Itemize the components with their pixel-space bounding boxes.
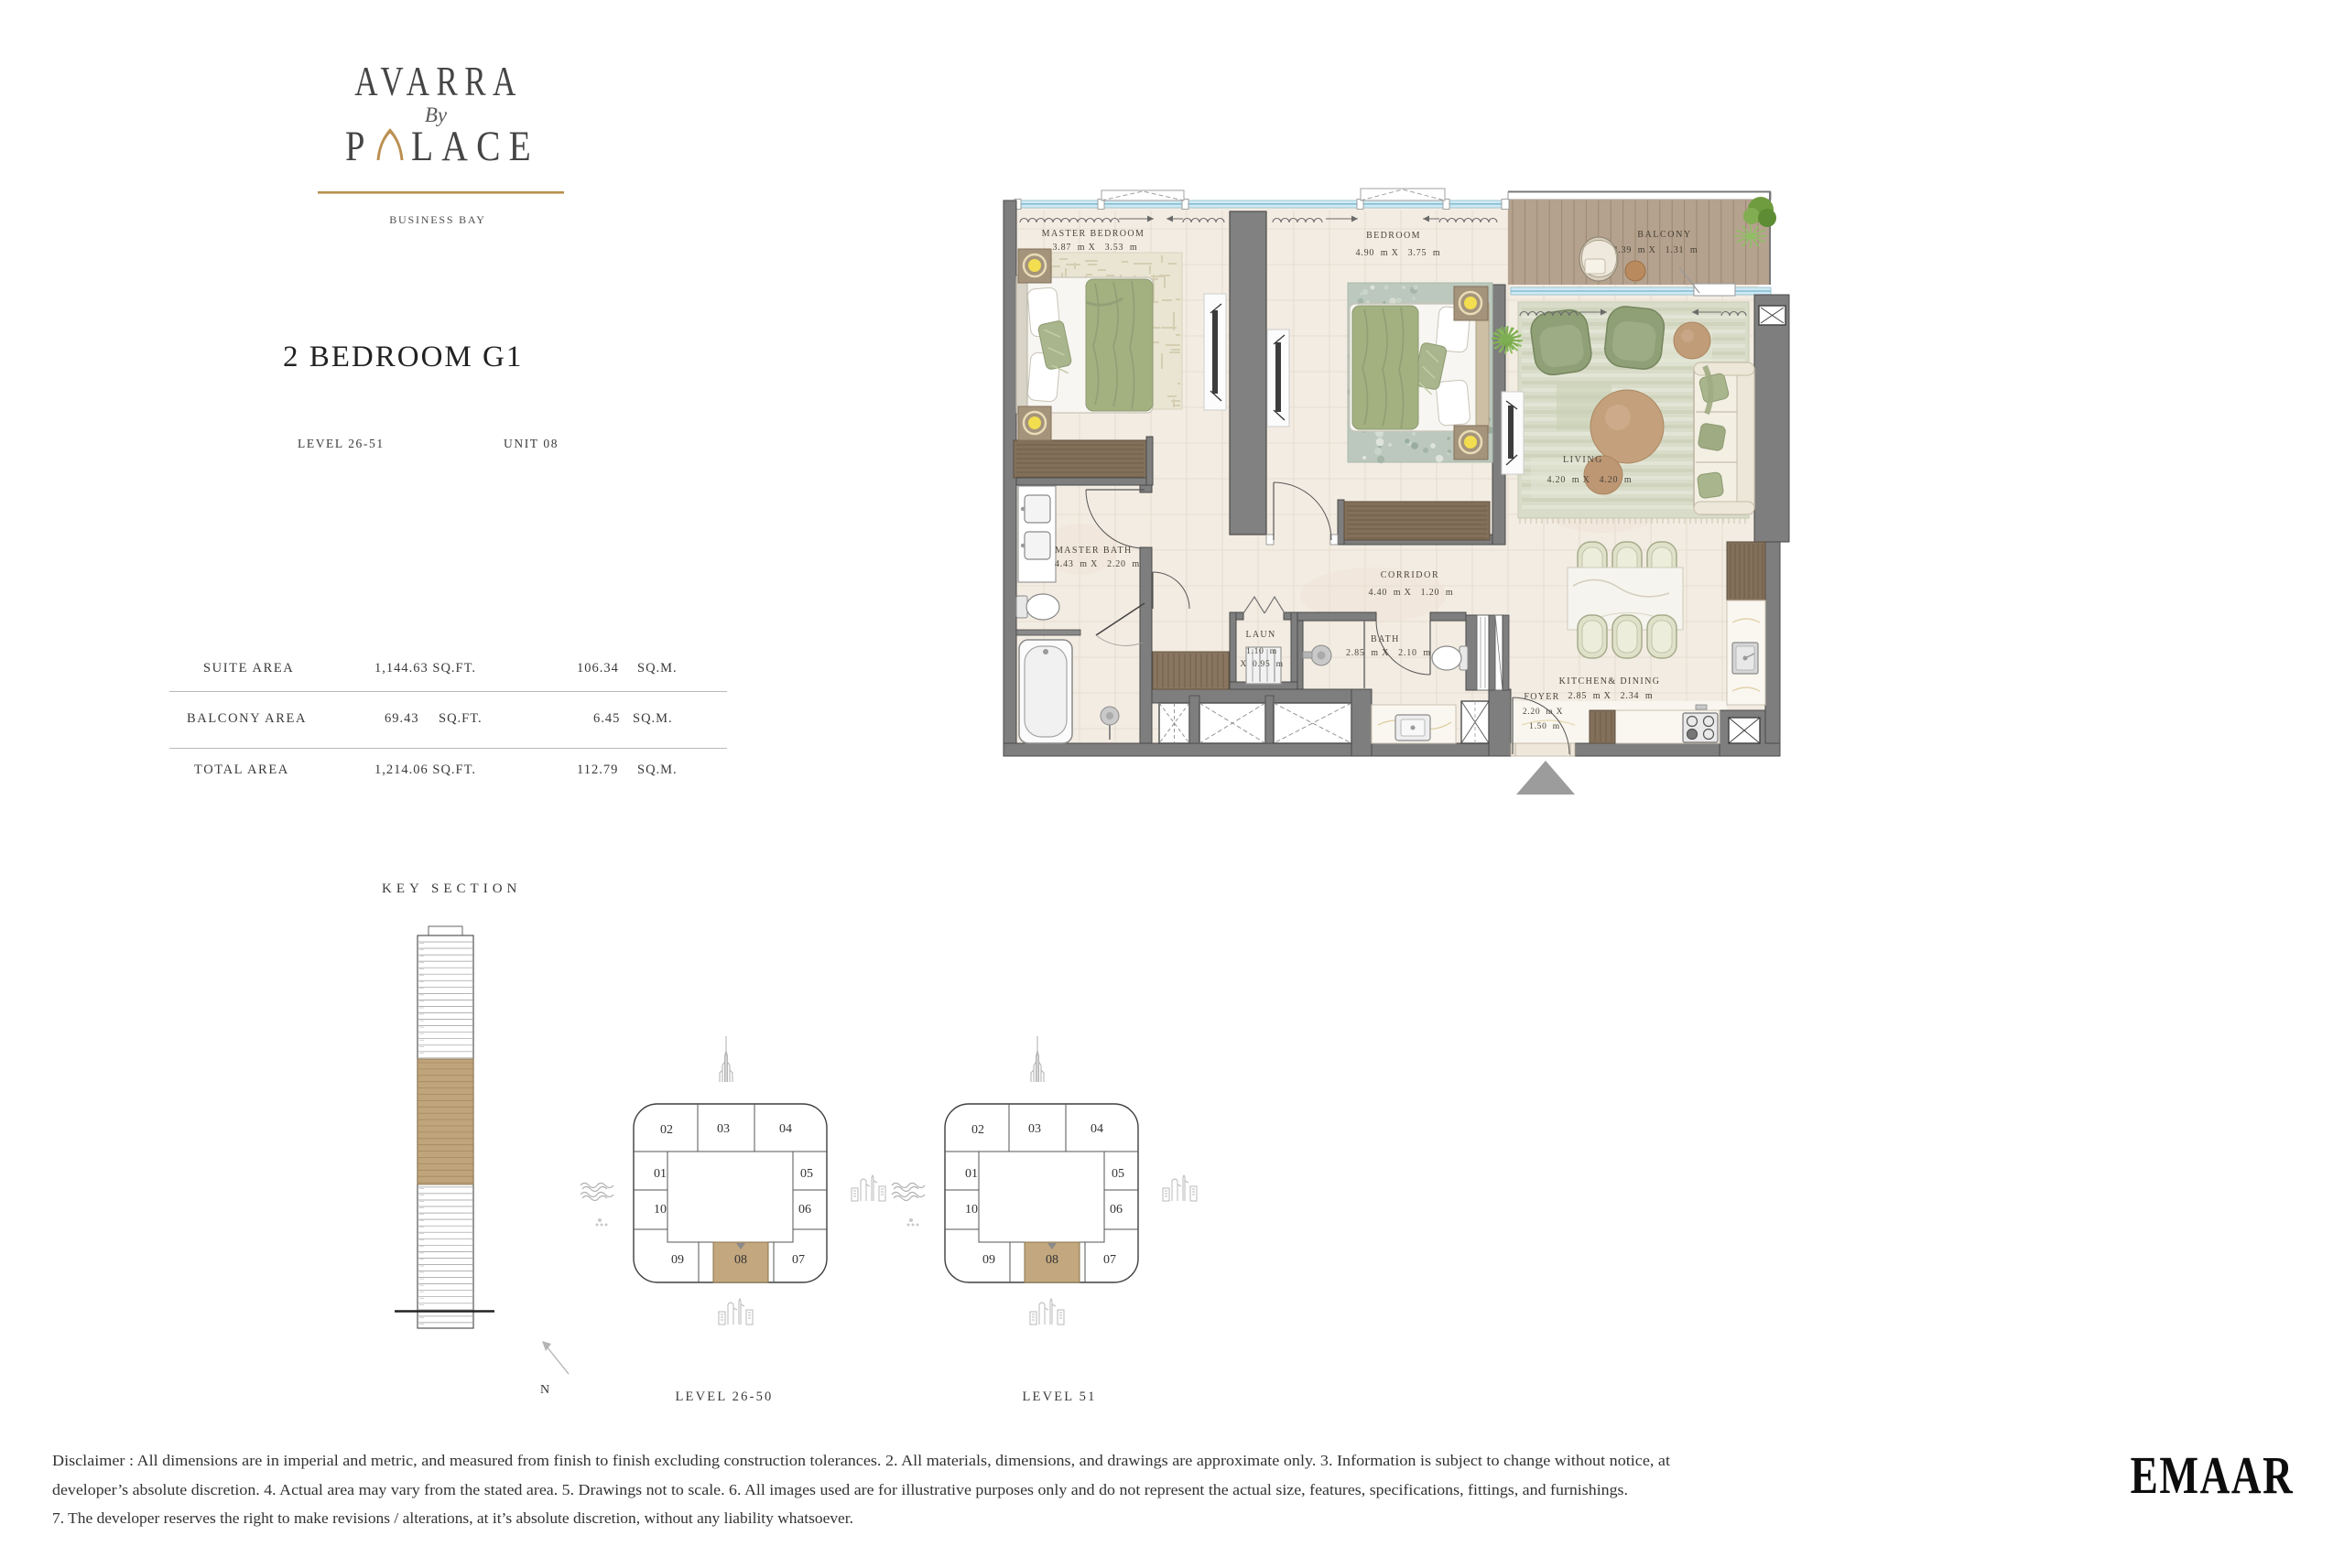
- svg-text:KEY SECTION: KEY SECTION: [382, 881, 521, 896]
- svg-text:CORRIDOR: CORRIDOR: [1381, 570, 1439, 580]
- svg-text:4.43 m X 2.20 m: 4.43 m X 2.20 m: [1055, 559, 1140, 569]
- svg-text:3.87 m X 3.53 m: 3.87 m X 3.53 m: [1053, 243, 1138, 253]
- svg-text:08: 08: [1046, 1253, 1058, 1267]
- svg-text:LIVING: LIVING: [1563, 455, 1603, 465]
- svg-text:04: 04: [779, 1122, 792, 1136]
- svg-text:10: 10: [965, 1203, 978, 1217]
- svg-text:1,214.06 SQ.FT.: 1,214.06 SQ.FT.: [374, 762, 476, 777]
- svg-text:SUITE AREA: SUITE AREA: [203, 661, 294, 676]
- svg-text:09: 09: [982, 1253, 995, 1267]
- svg-text:LACE: LACE: [411, 123, 539, 170]
- svg-text:106.34: 106.34: [577, 661, 619, 676]
- svg-text:UNIT 08: UNIT 08: [504, 437, 559, 450]
- svg-text:LEVEL 26-50: LEVEL 26-50: [675, 1390, 773, 1404]
- svg-text:06: 06: [1110, 1203, 1123, 1217]
- svg-text:developer’s absolute discretio: developer’s absolute discretion. 4. Actu…: [52, 1481, 1628, 1498]
- svg-text:MASTER BATH: MASTER BATH: [1055, 546, 1133, 556]
- svg-text:08: 08: [734, 1253, 747, 1267]
- svg-text:LEVEL 26-51: LEVEL 26-51: [298, 437, 385, 450]
- svg-text:1.50 m: 1.50 m: [1529, 722, 1560, 731]
- svg-text:MASTER BEDROOM: MASTER BEDROOM: [1042, 229, 1145, 239]
- svg-text:SQ.M.: SQ.M.: [637, 661, 678, 676]
- svg-text:09: 09: [671, 1253, 684, 1267]
- svg-text:AVARRA: AVARRA: [354, 59, 523, 104]
- svg-text:1,144.63 SQ.FT.: 1,144.63 SQ.FT.: [374, 661, 476, 676]
- svg-text:TOTAL AREA: TOTAL AREA: [194, 762, 289, 777]
- svg-text:1.10 m: 1.10 m: [1246, 647, 1277, 656]
- svg-text:4.20 m X 4.20 m: 4.20 m X 4.20 m: [1547, 475, 1633, 485]
- svg-text:02: 02: [660, 1123, 673, 1137]
- svg-text:EMAAR: EMAAR: [2131, 1447, 2295, 1506]
- svg-text:4.40 m X 1.20 m: 4.40 m X 1.20 m: [1369, 588, 1454, 598]
- svg-text:07: 07: [1103, 1253, 1116, 1267]
- svg-text:BEDROOM: BEDROOM: [1366, 231, 1421, 241]
- svg-text:KITCHEN& DINING: KITCHEN& DINING: [1559, 676, 1661, 687]
- svg-text:03: 03: [717, 1122, 730, 1136]
- svg-text:LAUN: LAUN: [1246, 630, 1276, 640]
- svg-text:N: N: [540, 1383, 549, 1397]
- svg-text:01: 01: [965, 1167, 978, 1181]
- svg-text:SQ.M.: SQ.M.: [633, 711, 673, 726]
- svg-text:BALCONY AREA: BALCONY AREA: [187, 711, 307, 726]
- svg-text:SQ.M.: SQ.M.: [637, 762, 678, 777]
- svg-text:FOYER: FOYER: [1524, 692, 1559, 702]
- svg-text:112.79: 112.79: [577, 762, 618, 777]
- svg-text:7. The developer reserves the: 7. The developer reserves the right to m…: [52, 1509, 853, 1527]
- svg-text:69.43: 69.43: [385, 711, 419, 726]
- svg-text:01: 01: [654, 1167, 667, 1181]
- svg-text:BALCONY: BALCONY: [1637, 230, 1692, 240]
- svg-text:BUSINESS BAY: BUSINESS BAY: [389, 213, 486, 226]
- svg-text:6.45: 6.45: [593, 711, 620, 726]
- svg-text:03: 03: [1028, 1122, 1041, 1136]
- svg-text:P: P: [345, 124, 364, 170]
- svg-text:Disclaimer : All dimensions ar: Disclaimer : All dimensions are in imper…: [52, 1452, 1670, 1469]
- svg-text:BATH: BATH: [1371, 634, 1400, 644]
- svg-text:SQ.FT.: SQ.FT.: [439, 711, 483, 726]
- svg-text:4.90 m X 3.75 m: 4.90 m X 3.75 m: [1356, 248, 1441, 258]
- svg-text:2.20 m X: 2.20 m X: [1523, 708, 1563, 717]
- svg-text:05: 05: [1112, 1167, 1124, 1181]
- svg-text:07: 07: [792, 1253, 805, 1267]
- svg-text:06: 06: [798, 1203, 811, 1217]
- svg-text:2 BEDROOM G1: 2 BEDROOM G1: [283, 341, 523, 373]
- svg-text:02: 02: [971, 1123, 984, 1137]
- svg-text:2.85 m X 2.34 m: 2.85 m X 2.34 m: [1568, 691, 1654, 701]
- svg-text:10: 10: [654, 1203, 667, 1217]
- svg-text:4.39 m X 1.31 m: 4.39 m X 1.31 m: [1613, 245, 1698, 255]
- svg-text:X 0.95 m: X 0.95 m: [1240, 660, 1283, 669]
- svg-text:05: 05: [800, 1167, 813, 1181]
- svg-text:LEVEL 51: LEVEL 51: [1022, 1390, 1096, 1404]
- svg-text:04: 04: [1091, 1122, 1103, 1136]
- svg-text:2.85 m X 2.10 m: 2.85 m X 2.10 m: [1346, 648, 1431, 658]
